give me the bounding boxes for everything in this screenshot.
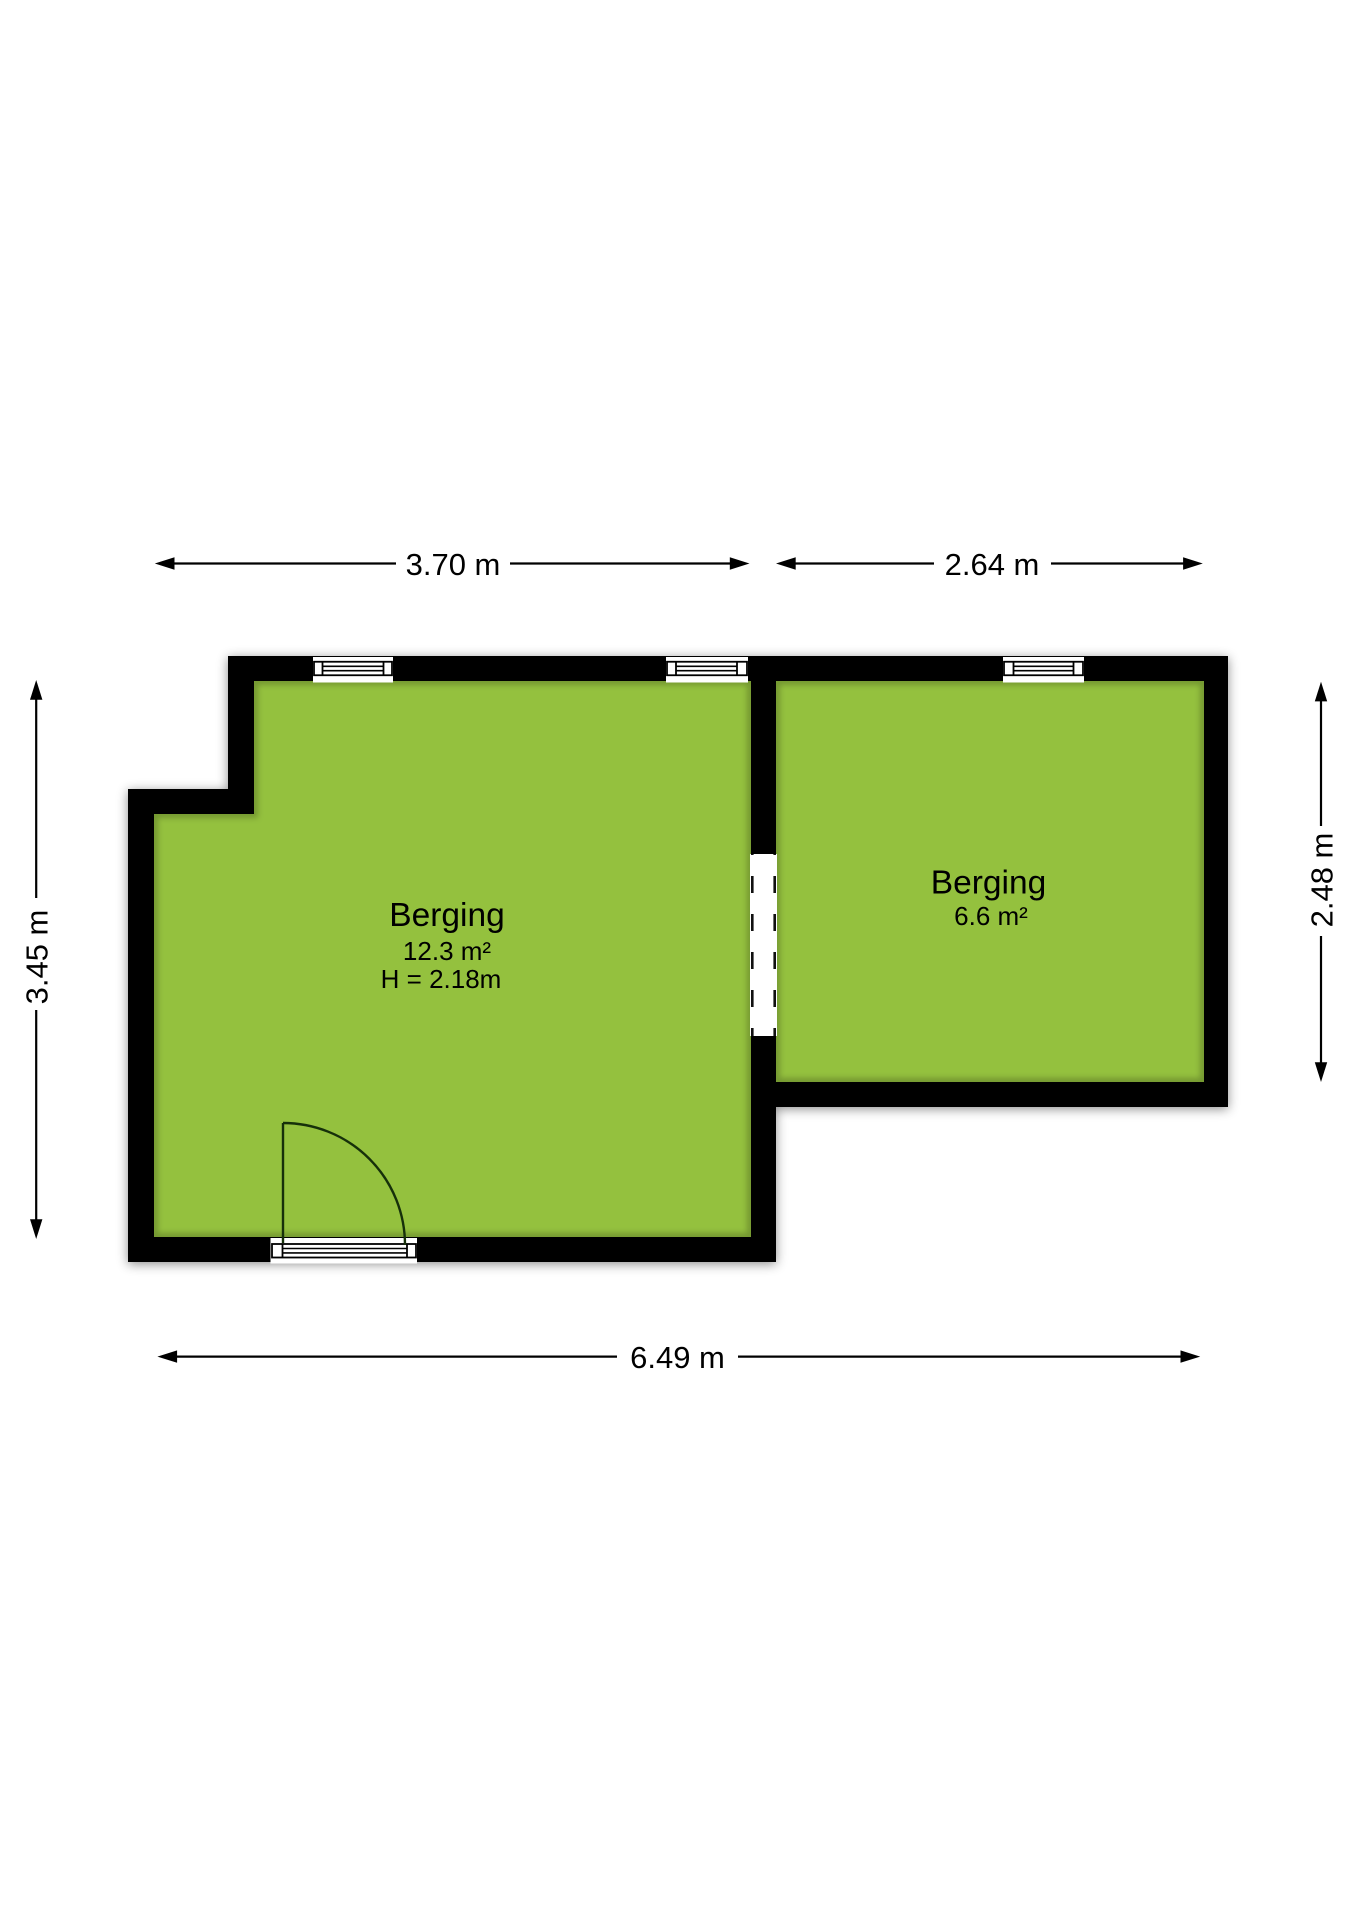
svg-text:2.64 m: 2.64 m <box>945 547 1040 582</box>
svg-text:6.49 m: 6.49 m <box>630 1340 725 1375</box>
svg-text:3.45 m: 3.45 m <box>20 910 55 1005</box>
svg-text:3.70 m: 3.70 m <box>406 547 501 582</box>
svg-text:2.48 m: 2.48 m <box>1305 833 1340 928</box>
svg-text:H = 2.18m: H = 2.18m <box>381 964 502 994</box>
svg-text:12.3 m²: 12.3 m² <box>403 936 491 966</box>
svg-text:Berging: Berging <box>389 897 504 934</box>
svg-text:6.6 m²: 6.6 m² <box>954 901 1028 931</box>
svg-text:Berging: Berging <box>931 865 1046 902</box>
